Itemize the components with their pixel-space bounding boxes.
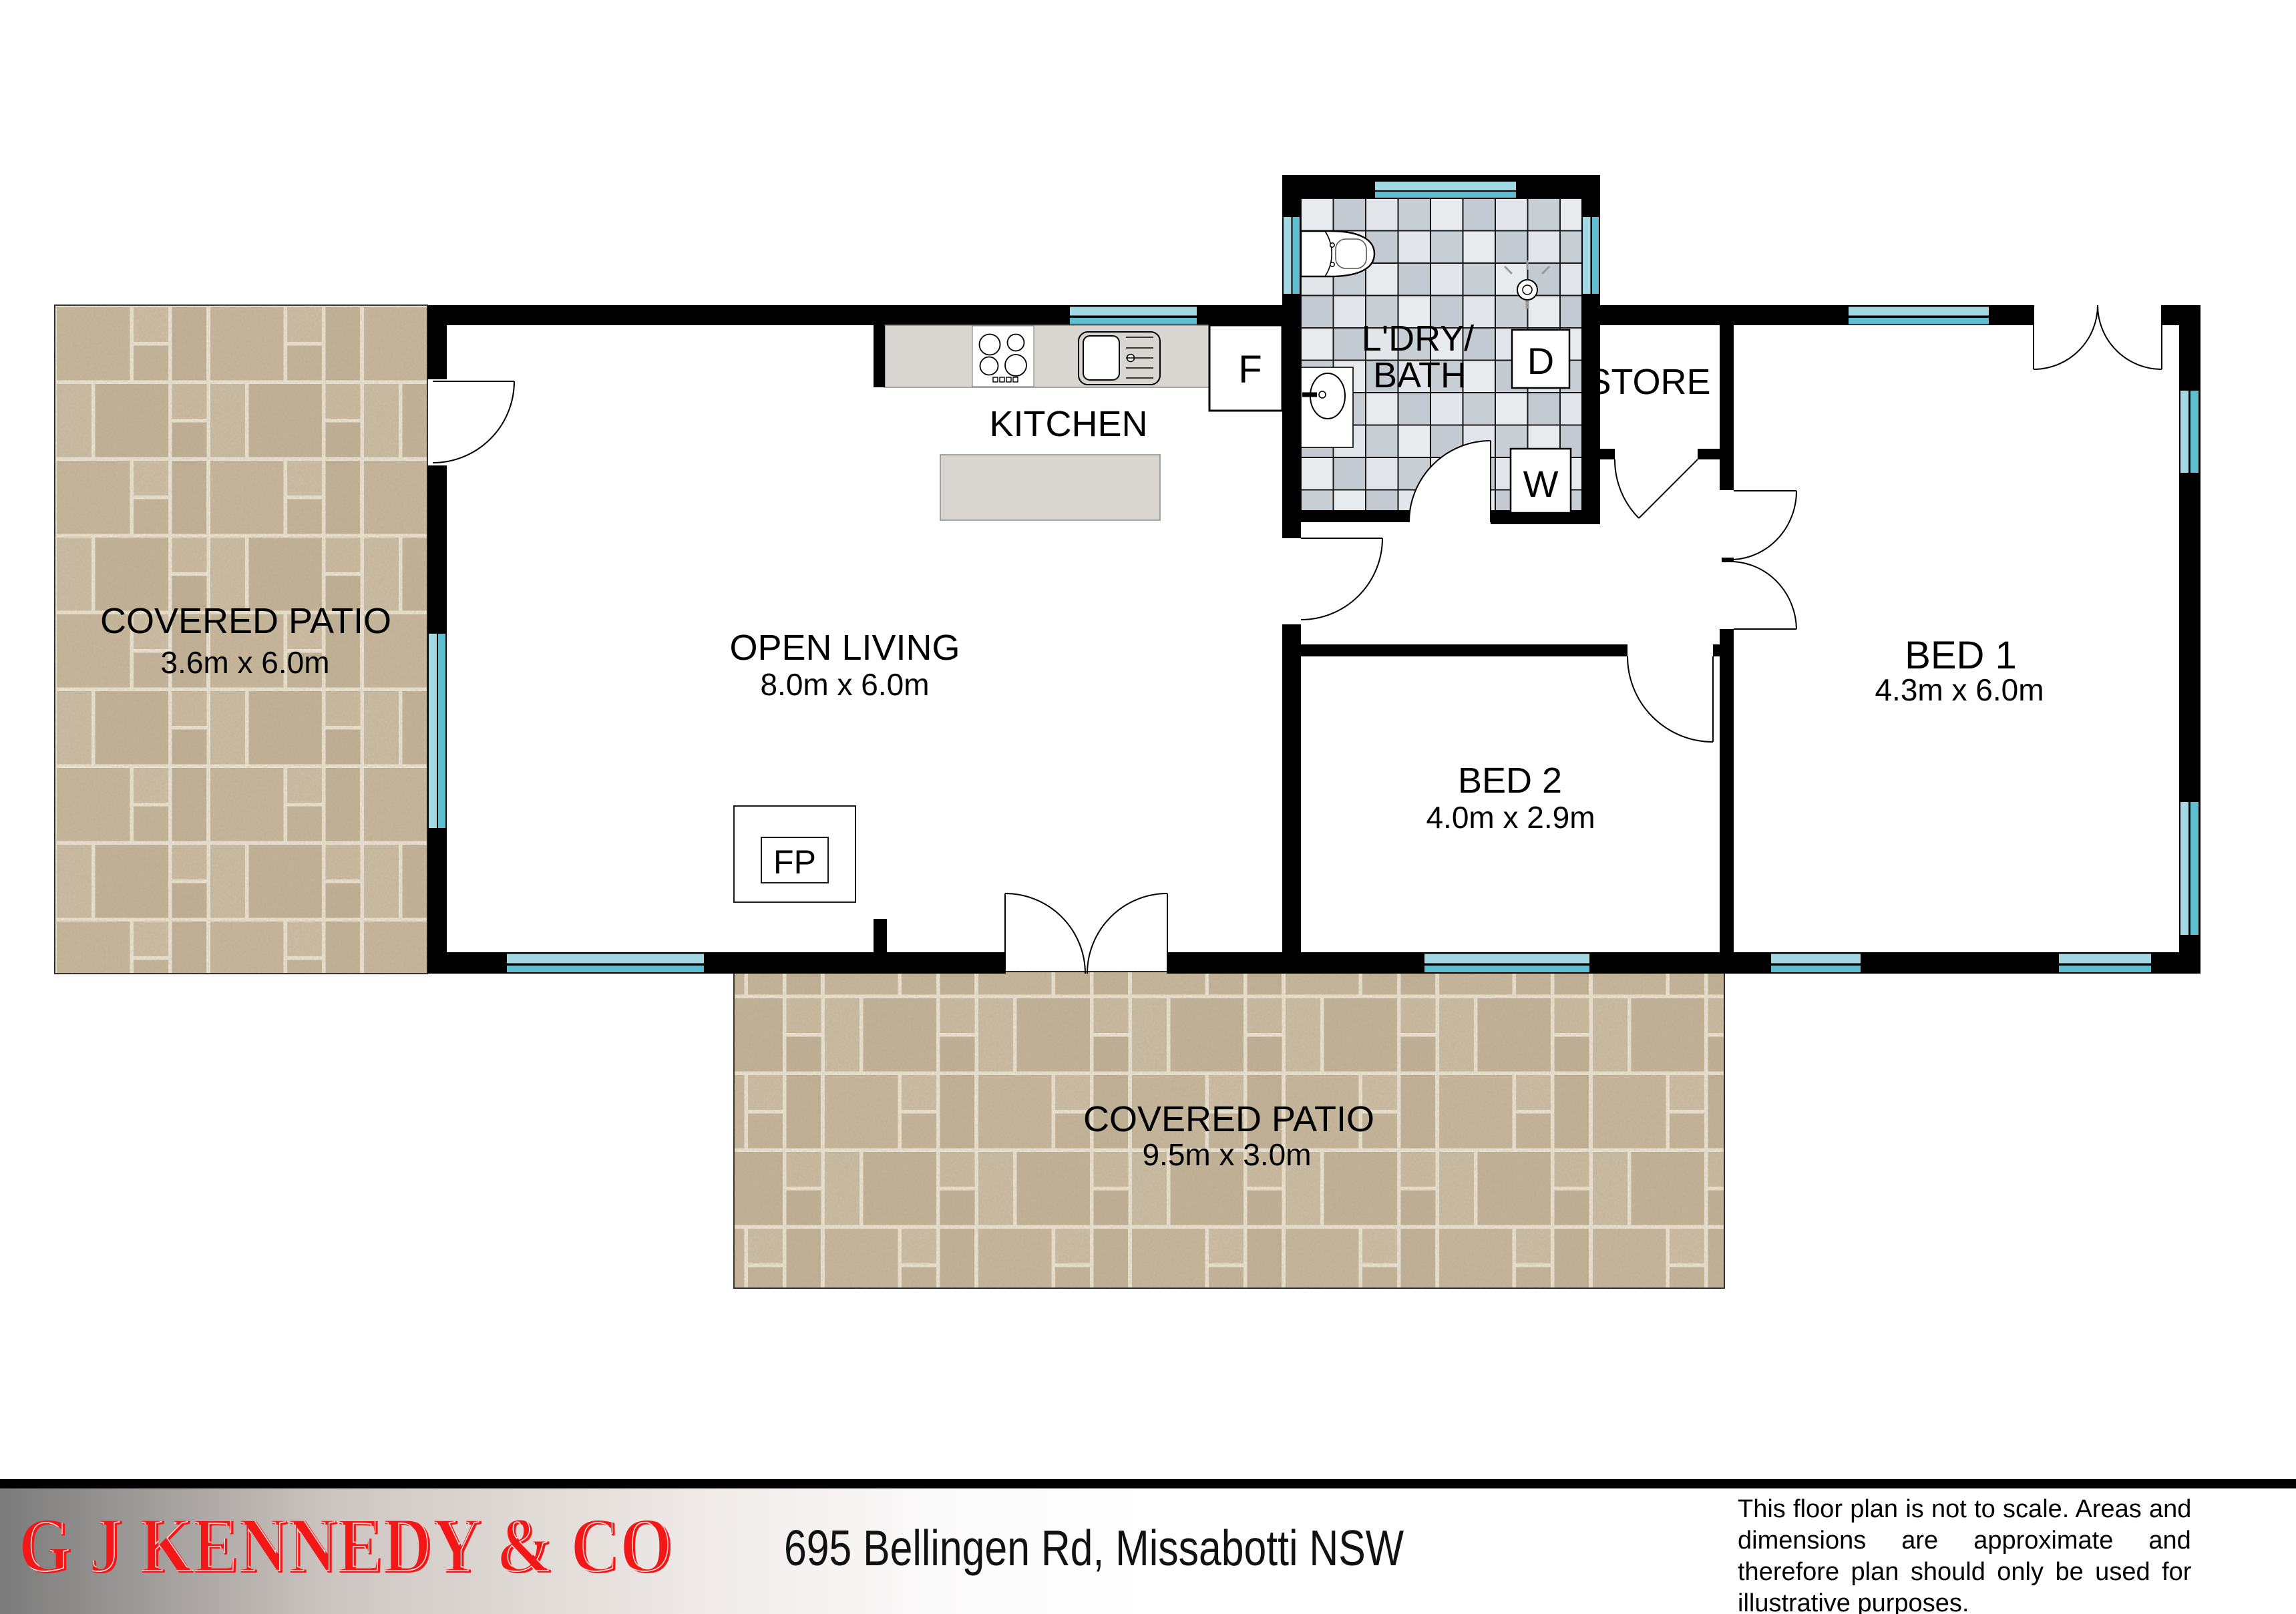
svg-text:D: D	[1527, 340, 1554, 382]
svg-text:3.6m x 6.0m: 3.6m x 6.0m	[160, 645, 329, 680]
svg-text:therefore plan should only be: therefore plan should only be used for	[1738, 1558, 2192, 1586]
svg-text:COVERED PATIO: COVERED PATIO	[100, 601, 391, 641]
svg-text:illustrative purposes.: illustrative purposes.	[1738, 1589, 1969, 1614]
svg-text:9.5m x 3.0m: 9.5m x 3.0m	[1142, 1137, 1311, 1172]
svg-text:4.0m x 2.9m: 4.0m x 2.9m	[1426, 800, 1595, 835]
svg-text:dimensions are approximate and: dimensions are approximate and	[1738, 1527, 2191, 1555]
svg-text:KITCHEN: KITCHEN	[989, 404, 1147, 444]
svg-text:STORE: STORE	[1587, 362, 1710, 402]
svg-text:OPEN LIVING: OPEN LIVING	[729, 628, 960, 668]
svg-text:G J KENNEDY & CO: G J KENNEDY & CO	[17, 1500, 671, 1588]
svg-text:This floor plan is not to scal: This floor plan is not to scale. Areas a…	[1738, 1495, 2191, 1523]
svg-text:8.0m x 6.0m: 8.0m x 6.0m	[760, 667, 929, 702]
svg-text:4.3m x 6.0m: 4.3m x 6.0m	[1875, 672, 2044, 707]
svg-text:L'DRY/: L'DRY/	[1362, 319, 1474, 359]
svg-text:BATH: BATH	[1373, 355, 1467, 395]
svg-text:695 Bellingen Rd, Missabotti N: 695 Bellingen Rd, Missabotti NSW	[784, 1520, 1404, 1576]
svg-text:BED 1: BED 1	[1905, 634, 2017, 677]
svg-text:F: F	[1238, 348, 1262, 391]
svg-text:FP: FP	[773, 843, 816, 881]
svg-text:COVERED PATIO: COVERED PATIO	[1083, 1099, 1374, 1139]
svg-text:W: W	[1523, 463, 1559, 505]
svg-text:BED 2: BED 2	[1458, 761, 1562, 801]
